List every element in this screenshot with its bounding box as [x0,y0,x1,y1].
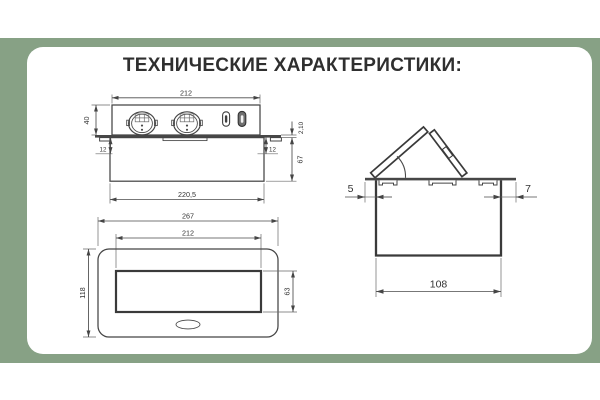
dimension-label: 108 [430,279,448,291]
dimension-label: 63 [283,288,292,296]
dimension-label: 7 [525,183,531,195]
page-title: ТЕХНИЧЕСКИЕ ХАРАКТЕРИСТИКИ: [0,55,585,77]
clip-middle [429,180,456,185]
dimension-label: 40 [82,117,91,125]
dimension-label: 212 [180,88,192,97]
arm-latch [442,147,452,159]
dimension-label: 118 [78,287,87,298]
dimension-label: 67 [296,156,305,164]
recessed-housing [110,138,264,182]
lid-opening [116,271,261,312]
dimension-label: 267 [182,212,194,221]
dimension-label: 212 [182,229,194,238]
side-view-drawing: 5 7 108 [328,104,548,302]
housing-box [376,180,501,255]
usb-c-port-icon [238,111,246,126]
clip-right [479,180,497,185]
open-lid-panel [371,127,428,178]
dimension-label: 220,5 [178,190,196,199]
cover-plate-outline [98,249,278,337]
page: ТЕХНИЧЕСКИЕ ХАРАКТЕРИСТИКИ: 212 [0,0,600,400]
top-view-drawing: 267 212 118 63 [78,208,308,344]
dimension-label: 5 [348,183,354,195]
flange-clip-right [270,138,281,141]
usb-a-port-icon [223,112,230,126]
flange-clip-left [100,138,111,141]
press-button [176,320,200,329]
flange-plate [365,178,516,181]
dimension-label: 12 [100,147,107,154]
hinge-arc [397,156,406,178]
clip-left [379,180,397,185]
dimension-label: 12 [269,147,276,154]
dimension-label: 2,10 [298,121,305,134]
front-view-drawing: 212 40 12 12 2,10 [78,86,310,210]
